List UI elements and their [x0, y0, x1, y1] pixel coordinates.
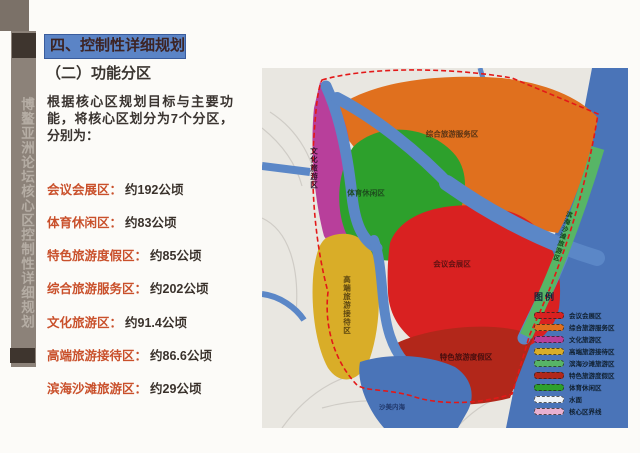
zone-label: 会议会展区： [47, 183, 122, 197]
legend-label: 会议会展区 [569, 310, 602, 320]
legend-row: 核心区界线 [534, 405, 628, 417]
zone-value: 约85公顷 [150, 249, 201, 263]
zone-value: 约86.6公顷 [150, 349, 212, 363]
legend-swatch [534, 312, 564, 319]
zone-label: 高端旅游接待区： [47, 349, 147, 363]
zone-label: 滨海沙滩旅游区： [47, 382, 147, 396]
legend-row: 体育休闲区 [534, 381, 628, 393]
legend-row: 特色旅游度假区 [534, 369, 628, 381]
intro-paragraph: 根据核心区规划目标与主要功能，将核心区划分为7个分区，分别为： [47, 93, 233, 144]
legend-row: 高端旅游接待区 [534, 345, 628, 357]
zone-list-item: 会议会展区：约192公顷 [47, 179, 262, 195]
map-label-conference: 会议会展区 [433, 259, 471, 270]
legend-swatch [534, 360, 564, 367]
map-label-inner-bay: 沙美内海 [379, 401, 405, 411]
zone-value: 约192公顷 [125, 183, 183, 197]
zone-value: 约83公顷 [125, 216, 176, 230]
zone-list-item: 综合旅游服务区：约202公顷 [47, 278, 262, 294]
zone-label: 特色旅游度假区： [47, 249, 147, 263]
legend-label: 特色旅游度假区 [569, 370, 615, 380]
legend-row: 文化旅游区 [534, 333, 628, 345]
corner-block [0, 0, 29, 31]
legend-swatch [534, 372, 564, 379]
legend-label: 水面 [569, 394, 582, 404]
slide: 博鳌亚洲论坛核心区控制性详细规划 四、控制性详细规划 （二）功能分区 根据核心区… [0, 0, 640, 453]
map-label-comprehensive: 综合旅游服务区 [426, 129, 479, 140]
zone-list-item: 文化旅游区：约91.4公顷 [47, 312, 262, 328]
zone-label: 体育休闲区： [47, 216, 122, 230]
zone-label: 文化旅游区： [47, 316, 122, 330]
map-legend: 图例 会议会展区 综合旅游服务区 文化旅游区 高端旅游接待区 滨海沙滩旅游区 特… [534, 290, 628, 417]
legend-swatch [534, 396, 564, 403]
legend-swatch [534, 348, 564, 355]
section-subtitle: （二）功能分区 [46, 62, 151, 83]
map-label-sports: 体育休闲区 [347, 188, 385, 199]
zone-list-item: 高端旅游接待区：约86.6公顷 [47, 345, 262, 361]
zone-value: 约202公顷 [150, 282, 208, 296]
zone-list-item: 体育休闲区：约83公顷 [47, 212, 262, 228]
zone-list-item: 特色旅游度假区：约85公顷 [47, 245, 262, 261]
zone-list-item: 滨海沙滩旅游区：约29公顷 [47, 378, 262, 394]
sidebar-vertical-title: 博鳌亚洲论坛核心区控制性详细规划 [11, 70, 36, 355]
legend-label: 体育休闲区 [569, 382, 602, 392]
zone-value: 约91.4公顷 [125, 316, 187, 330]
legend-row: 会议会展区 [534, 309, 628, 321]
legend-label: 文化旅游区 [569, 334, 602, 344]
legend-swatch [534, 336, 564, 343]
map-label-featured: 特色旅游度假区 [440, 352, 493, 363]
page-title: 四、控制性详细规划 [44, 34, 186, 59]
zone-label: 综合旅游服务区： [47, 282, 147, 296]
map-label-highend: 高端旅游接待区 [342, 275, 353, 335]
legend-label: 核心区界线 [569, 406, 602, 416]
sidebar-square-top [12, 33, 36, 58]
legend-title: 图例 [534, 290, 628, 303]
legend-row: 滨海沙滩旅游区 [534, 357, 628, 369]
legend-label: 滨海沙滩旅游区 [569, 358, 615, 368]
legend-swatch [534, 408, 564, 415]
legend-row: 水面 [534, 393, 628, 405]
legend-swatch [534, 384, 564, 391]
legend-swatch [534, 324, 564, 331]
zoning-map: 综合旅游服务区 文化旅游区 体育休闲区 会议会展区 特色旅游度假区 高端旅游接待… [262, 68, 628, 428]
zone-value: 约29公顷 [150, 382, 201, 396]
legend-label: 综合旅游服务区 [569, 322, 615, 332]
legend-label: 高端旅游接待区 [569, 346, 615, 356]
legend-row: 综合旅游服务区 [534, 321, 628, 333]
map-label-culture: 文化旅游区 [309, 147, 320, 190]
